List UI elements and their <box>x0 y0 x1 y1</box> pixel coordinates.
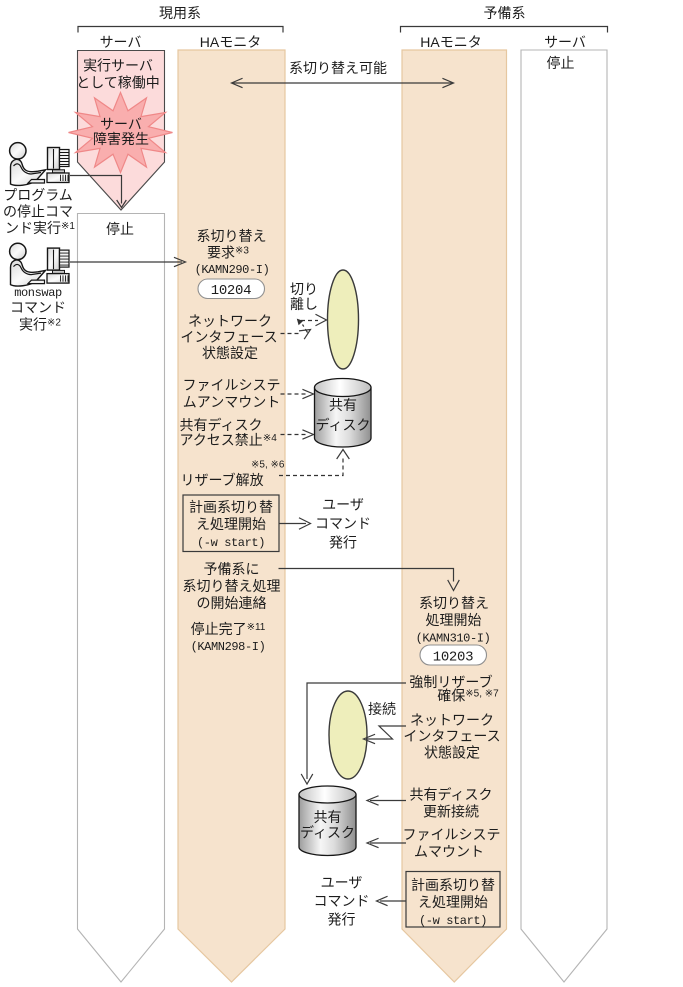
svg-text:ディスク: ディスク <box>300 825 355 841</box>
svg-text:※5, ※6: ※5, ※6 <box>251 460 285 471</box>
svg-text:アクセス禁止※4: アクセス禁止※4 <box>180 432 278 448</box>
svg-text:HAモニタ: HAモニタ <box>200 34 261 50</box>
svg-text:障害発生: 障害発生 <box>93 131 149 147</box>
svg-text:(KAMN310-I): (KAMN310-I) <box>416 632 491 646</box>
svg-text:計画系切り替: 計画系切り替 <box>189 499 273 515</box>
svg-text:ネットワーク: ネットワーク <box>410 712 494 728</box>
svg-text:ユーザ: ユーザ <box>322 497 364 513</box>
svg-text:ネットワーク: ネットワーク <box>188 313 272 329</box>
svg-text:(-w start): (-w start) <box>419 914 487 928</box>
svg-text:共有: 共有 <box>329 397 357 413</box>
svg-text:切り: 切り <box>290 281 318 297</box>
svg-text:共有: 共有 <box>314 809 342 825</box>
svg-text:え処理開始: え処理開始 <box>418 894 488 910</box>
svg-text:ファイルシステ: ファイルシステ <box>403 827 501 843</box>
svg-text:ファイルシステ: ファイルシステ <box>183 377 281 393</box>
svg-text:予備系: 予備系 <box>484 5 526 21</box>
svg-text:ムアンマウント: ムアンマウント <box>183 394 280 410</box>
svg-text:実行サーバ: 実行サーバ <box>83 58 153 74</box>
svg-text:共有ディスク: 共有ディスク <box>180 417 263 433</box>
svg-text:(KAMN290-I): (KAMN290-I) <box>195 263 270 277</box>
svg-text:プログラム: プログラム <box>3 187 73 203</box>
svg-text:リザーブ解放: リザーブ解放 <box>181 472 264 488</box>
svg-text:え処理開始: え処理開始 <box>196 516 266 532</box>
svg-text:(KAMN298-I): (KAMN298-I) <box>191 640 266 654</box>
svg-text:の停止コマ: の停止コマ <box>3 204 73 220</box>
svg-text:共有ディスク: 共有ディスク <box>409 787 492 803</box>
svg-text:ンド実行※1: ンド実行※1 <box>5 220 75 236</box>
svg-text:処理開始: 処理開始 <box>426 612 482 628</box>
svg-text:状態設定: 状態設定 <box>202 345 258 361</box>
svg-text:HAモニタ: HAモニタ <box>420 34 481 50</box>
svg-text:更新接続: 更新接続 <box>423 804 479 820</box>
svg-text:実行※2: 実行※2 <box>19 317 61 333</box>
svg-text:ムマウント: ムマウント <box>414 844 484 860</box>
svg-text:として稼働中: として稼働中 <box>76 75 160 91</box>
svg-text:10204: 10204 <box>211 283 252 299</box>
svg-text:予備系に: 予備系に <box>204 561 260 577</box>
svg-text:コマンド: コマンド <box>10 300 66 316</box>
svg-text:発行: 発行 <box>329 535 357 551</box>
svg-text:10203: 10203 <box>433 650 474 666</box>
svg-text:サーバ: サーバ <box>544 34 586 50</box>
svg-text:インタフェース: インタフェース <box>180 329 277 345</box>
svg-text:停止: 停止 <box>106 221 134 237</box>
svg-text:ディスク: ディスク <box>315 417 370 433</box>
svg-text:monswap: monswap <box>14 286 62 300</box>
svg-text:接続: 接続 <box>368 701 396 717</box>
svg-text:の開始連絡: の開始連絡 <box>197 595 267 611</box>
svg-text:現用系: 現用系 <box>159 5 201 21</box>
svg-text:系切り替え: 系切り替え <box>197 228 267 244</box>
svg-text:離し: 離し <box>290 296 318 312</box>
svg-text:系切り替え可能: 系切り替え可能 <box>289 60 387 76</box>
svg-text:発行: 発行 <box>328 912 356 928</box>
svg-text:コマンド: コマンド <box>315 516 371 532</box>
svg-text:ユーザ: ユーザ <box>321 875 363 891</box>
svg-text:インタフェース: インタフェース <box>403 728 500 744</box>
svg-text:停止: 停止 <box>547 55 575 71</box>
svg-text:状態設定: 状態設定 <box>424 745 480 761</box>
svg-text:(-w start): (-w start) <box>197 536 265 550</box>
svg-text:系切り替え: 系切り替え <box>419 595 489 611</box>
svg-text:サーバ: サーバ <box>100 116 142 132</box>
svg-text:サーバ: サーバ <box>100 34 142 50</box>
svg-text:系切り替え処理: 系切り替え処理 <box>183 578 281 594</box>
svg-text:計画系切り替: 計画系切り替 <box>411 877 495 893</box>
svg-text:コマンド: コマンド <box>314 893 370 909</box>
